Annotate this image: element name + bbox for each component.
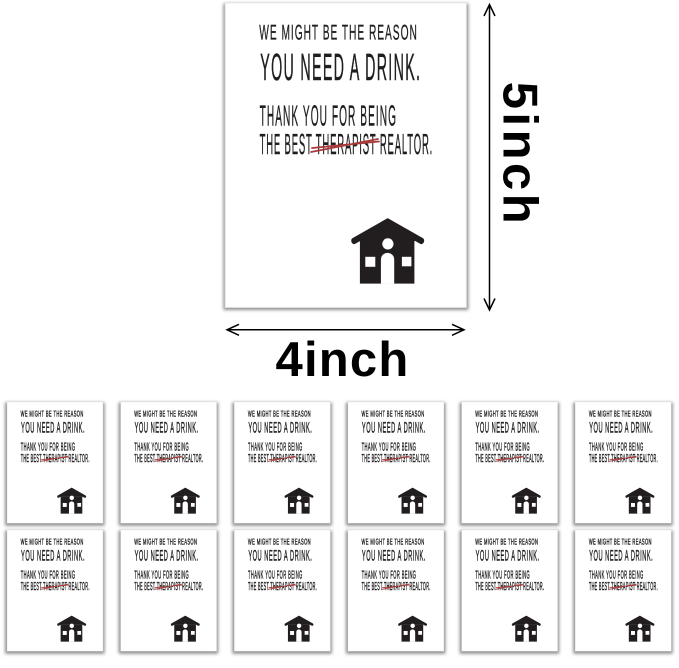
svg-text:4inch: 4inch	[276, 333, 410, 387]
svg-text:5inch: 5inch	[493, 82, 547, 227]
